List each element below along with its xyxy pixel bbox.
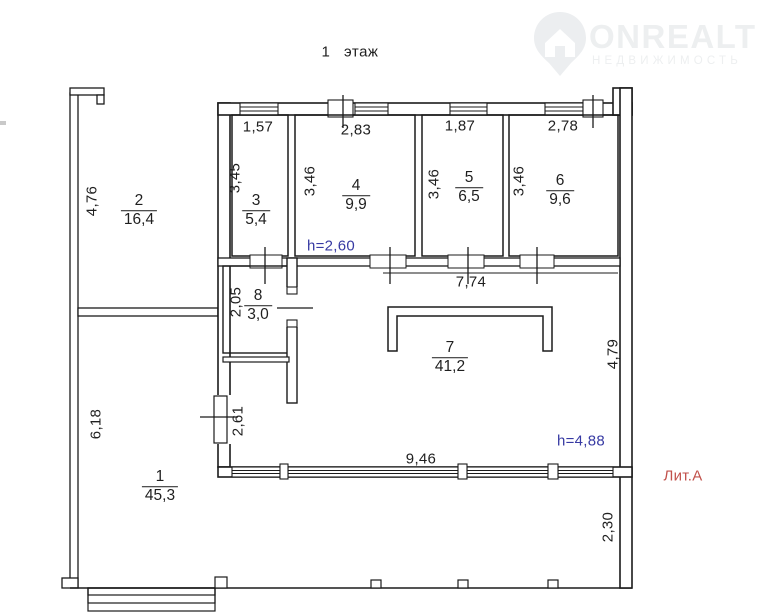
room-label-1: 1 45,3 [142,469,178,505]
room-area: 5,4 [242,211,270,229]
dim-corridor-width: 7,74 [456,275,486,290]
room-area: 6,5 [455,188,483,206]
dim-room8-height: 2,05 [229,287,244,317]
dim-room4-height: 3,46 [303,166,318,196]
room-number: 5 [463,170,476,187]
dim-room1-height: 6,18 [89,409,104,439]
room8-walls [223,258,313,403]
room-number: 3 [250,193,263,210]
litera-label: Лит.А [663,469,702,484]
dim-room3-width: 1,57 [243,120,273,135]
hall-counter-wall [388,307,552,351]
plan-lines-svg [0,0,770,615]
room-label-6: 6 9,6 [546,173,574,209]
room-area: 9,9 [342,196,370,214]
dim-hall-height: 4,79 [606,339,621,369]
dim-room4-width: 2,83 [341,123,371,138]
room-area: 9,6 [546,191,574,209]
room-label-2: 2 16,4 [121,193,157,229]
room-number: 1 [154,469,167,486]
floor-plan-page: ONREALT НЕДВИЖИМОСТЬ 1 этаж [0,0,770,615]
room-area: 3,0 [244,306,272,324]
dim-room2-height: 4,76 [85,186,100,216]
dim-terrace-height: 2,30 [601,512,616,542]
room-label-5: 5 6,5 [455,170,483,206]
room-number: 8 [252,288,265,305]
room-label-4: 4 9,9 [342,178,370,214]
ceiling-height-note: h=4,88 [557,434,605,449]
room-number: 4 [350,178,363,195]
room-area: 16,4 [121,211,157,229]
dim-hall-width: 9,46 [406,452,436,467]
dim-room6-width: 2,78 [548,119,578,134]
room-label-3: 3 5,4 [242,193,270,229]
room-number: 6 [554,173,567,190]
dim-room6-height: 3,46 [512,166,527,196]
dim-left-opening: 2,61 [231,406,246,436]
room-area: 45,3 [142,487,178,505]
room-number: 2 [133,193,146,210]
room-area: 41,2 [432,358,468,376]
room-label-7: 7 41,2 [432,340,468,376]
dim-room5-height: 3,46 [427,169,442,199]
room-label-8: 8 3,0 [244,288,272,324]
ceiling-height-note: h=2,60 [307,239,355,254]
room-number: 7 [444,340,457,357]
dim-room3-height: 3,45 [228,163,243,193]
main-block-walls [218,88,632,588]
dim-room5-width: 1,87 [445,119,475,134]
